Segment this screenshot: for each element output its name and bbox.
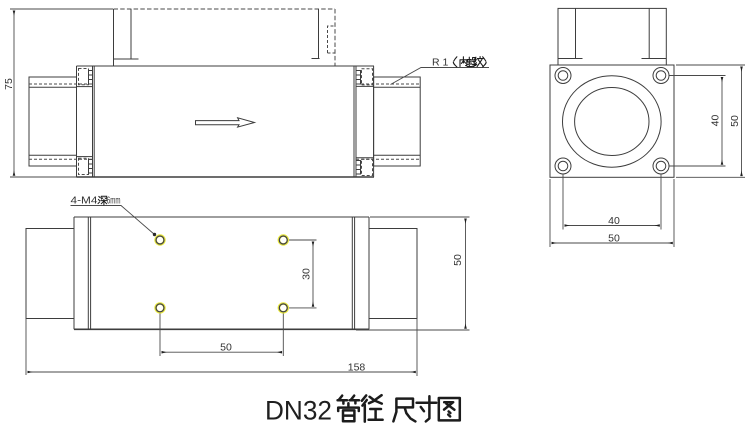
svg-text:50: 50: [608, 233, 620, 245]
svg-text:30: 30: [301, 268, 313, 280]
svg-text:50: 50: [452, 254, 464, 266]
svg-text:75: 75: [3, 78, 15, 90]
svg-text:40: 40: [710, 115, 722, 127]
svg-text:50: 50: [729, 115, 741, 127]
svg-text:40: 40: [608, 215, 620, 227]
svg-text:4-M4: 4-M4: [71, 195, 98, 207]
svg-text:6mm: 6mm: [107, 195, 121, 207]
svg-text:50: 50: [220, 342, 232, 354]
svg-text:R 1: R 1: [432, 57, 449, 69]
svg-text:DN32: DN32: [265, 396, 332, 426]
svg-text:158: 158: [348, 362, 366, 374]
